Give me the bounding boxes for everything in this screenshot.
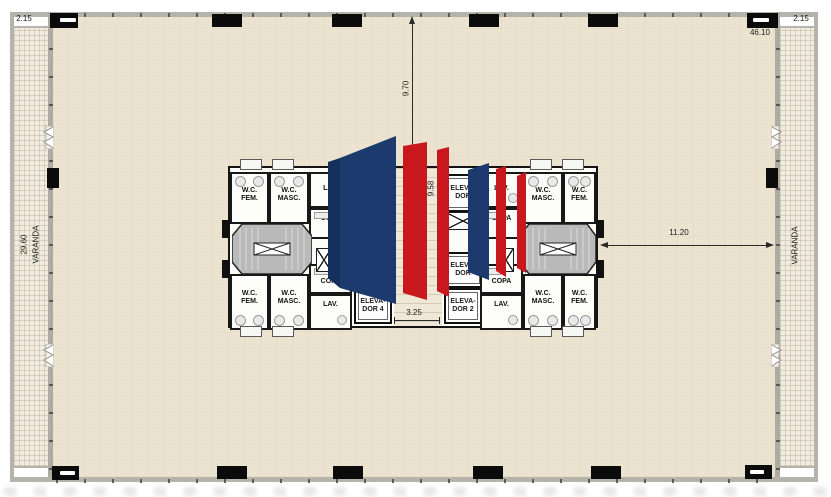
door-left-upper [41,126,54,149]
logo-navy-fold [328,158,340,288]
room-label-line: MASC. [525,298,561,306]
corner-tag-top-right [753,18,769,22]
room-label-line: W.C. [271,290,307,298]
room-wc-masc-bottom-left: W.C. MASC. [269,274,309,330]
dim-arrow-9-70 [409,16,415,24]
room-label-line: W.C. [565,187,594,195]
dim-29-60: 29.60 [20,215,29,275]
dim-9-70: 9.70 [402,59,411,119]
stair-left [232,224,312,274]
core-column-nub [596,220,604,238]
stall-bump [240,326,262,337]
room-label: W.C. MASC. [271,187,307,203]
room-label-line: W.C. [525,290,561,298]
column-top-3 [332,14,362,27]
developer-logo [320,130,530,315]
varanda-left-label: VARANDA [32,215,41,275]
room-wc-fem-top-left: W.C. FEM. [230,172,269,224]
door-right-lower [771,344,784,367]
stall-bump [562,326,584,337]
core-column-nub [222,220,230,238]
room-wc-fem-top-right: W.C. FEM. [563,172,596,224]
room-label-line: FEM. [565,195,594,203]
varanda-right-label: VARANDA [791,216,800,276]
stall-bump [272,159,294,170]
room-label-line: MASC. [271,195,307,203]
room-label-line: W.C. [565,290,594,298]
room-label: W.C. FEM. [565,290,594,306]
dim-arrow-left-11-20 [600,242,608,248]
column-top-2 [212,14,242,27]
cropped-caption-text [4,487,827,496]
stall-bump [272,326,294,337]
column-right-wall [766,168,778,188]
corner-tag-top-left [60,18,76,22]
dim-line-11-20 [602,245,772,246]
door-left-lower [41,344,54,367]
dim-line-3-25 [394,320,440,321]
logo-red-bar-4 [517,172,526,273]
logo-red-bar-3 [496,166,506,277]
room-label-line: W.C. [525,187,561,195]
corner-tag-bottom-left [60,471,75,475]
stall-bump [562,159,584,170]
room-label-line: FEM. [565,298,594,306]
column-bottom-2 [217,466,247,479]
dim-2-15-right: 2.15 [788,14,814,23]
door-right-upper [771,126,784,149]
logo-red-bar-1 [403,142,427,300]
logo-navy-panel [340,136,396,304]
dim-11-20: 11.20 [634,228,724,237]
stair-right [520,224,596,274]
stall-bump [530,326,552,337]
room-label: W.C. FEM. [232,187,267,203]
column-bottom-3 [333,466,363,479]
room-label: W.C. MASC. [271,290,307,306]
column-top-5 [588,14,618,27]
core-column-nub [596,260,604,278]
core-column-nub [222,260,230,278]
logo-navy-bar [468,163,489,280]
bottom-wall-ticks [56,479,772,483]
room-label-line: FEM. [232,298,267,306]
dim-arrow-right-11-20 [766,242,774,248]
room-label: W.C. FEM. [232,290,267,306]
dim-46-10: 46.10 [742,28,778,37]
room-wc-fem-bottom-right: W.C. FEM. [563,274,596,330]
room-label-line: MASC. [271,298,307,306]
dim-tick [394,317,395,324]
stall-bump [530,159,552,170]
floor-plan-image: W.C. FEM. W.C. MASC. LAV. COPA COPA LAV.… [0,0,831,497]
room-label-line: FEM. [232,195,267,203]
column-bottom-5 [591,466,621,479]
right-wall-ticks [776,30,780,470]
column-left-wall [47,168,59,188]
room-label: W.C. MASC. [525,290,561,306]
room-label-line: W.C. [232,187,267,195]
room-wc-fem-bottom-left: W.C. FEM. [230,274,269,330]
dim-tick [439,317,440,324]
column-bottom-4 [473,466,503,479]
room-label: W.C. MASC. [525,187,561,203]
room-label: W.C. FEM. [565,187,594,203]
left-wall-ticks [49,30,53,470]
room-label-line: MASC. [525,195,561,203]
logo-red-bar-2 [437,147,449,297]
room-wc-masc-top-left: W.C. MASC. [269,172,309,224]
room-label-line: W.C. [232,290,267,298]
stall-bump [240,159,262,170]
room-label-line: W.C. [271,187,307,195]
dim-2-15-left: 2.15 [11,14,37,23]
corner-tag-bottom-right [750,470,764,474]
outer-wall-right [814,12,818,482]
column-top-4 [469,14,499,27]
